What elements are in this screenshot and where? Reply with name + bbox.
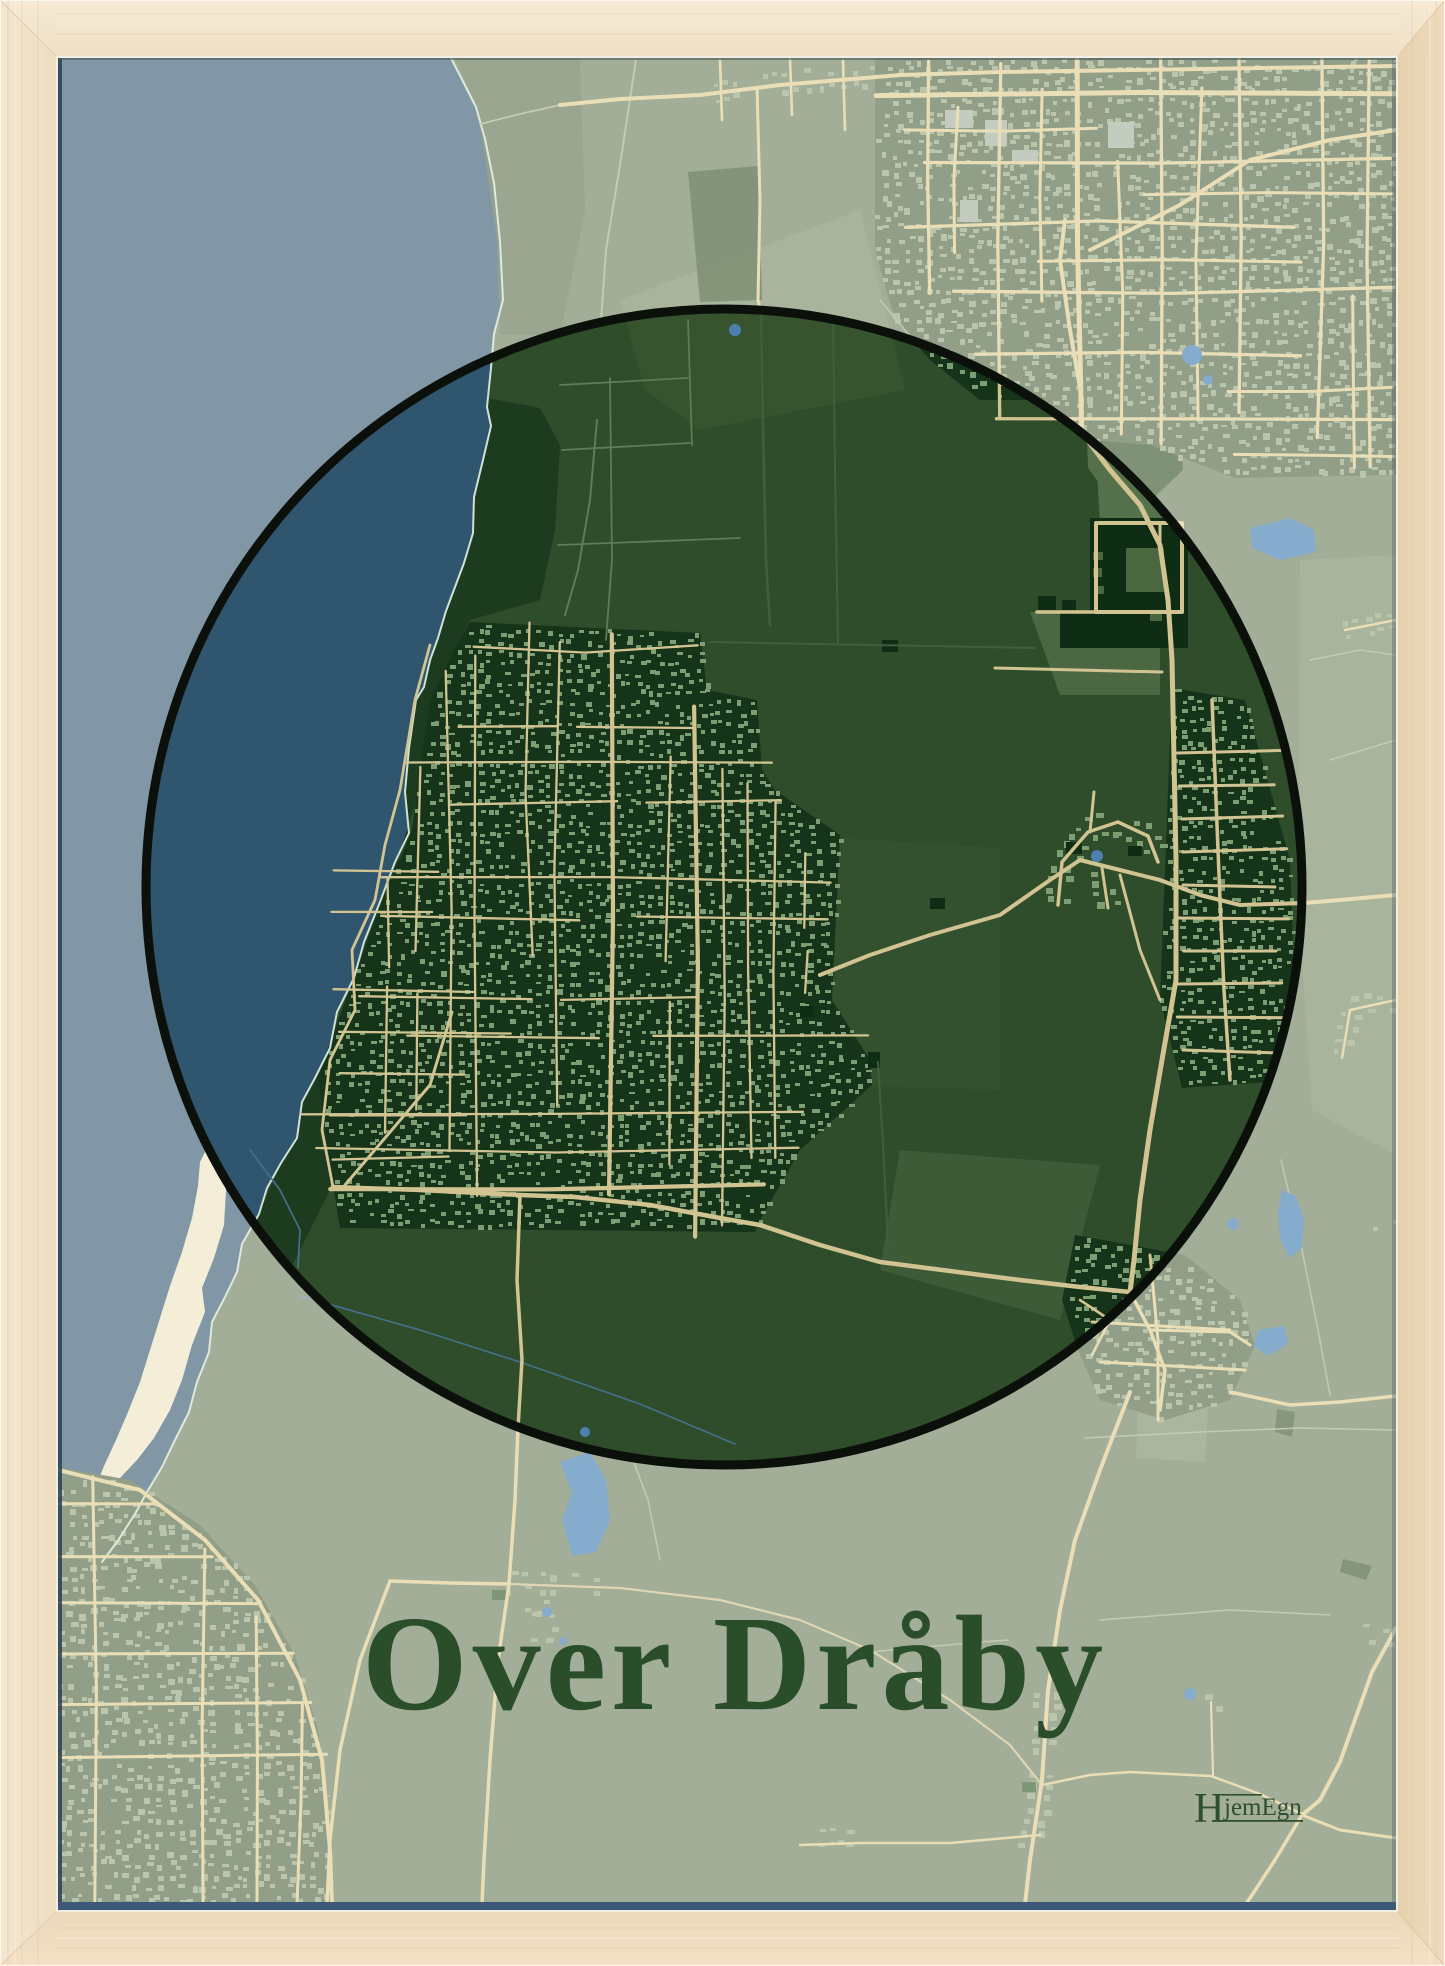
svg-text:Over Dråby: Over Dråby (362, 1589, 1108, 1739)
svg-text:jemEgn: jemEgn (1223, 1794, 1302, 1821)
svg-text:H: H (1194, 1786, 1224, 1832)
